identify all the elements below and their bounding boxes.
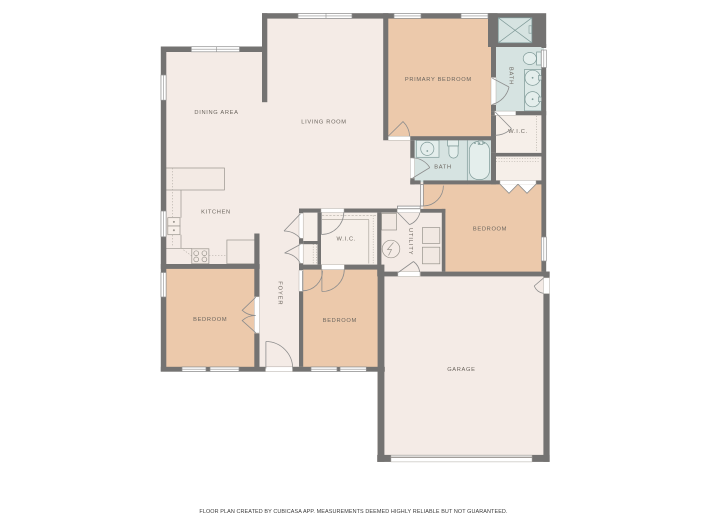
svg-text:BATH: BATH — [507, 67, 513, 85]
svg-text:FLOOR PLAN CREATED BY CUBICASA: FLOOR PLAN CREATED BY CUBICASA APP. MEAS… — [199, 509, 508, 515]
svg-text:KITCHEN: KITCHEN — [201, 210, 231, 216]
svg-text:W.I.C.: W.I.C. — [337, 237, 357, 243]
svg-text:BEDROOM: BEDROOM — [473, 226, 507, 232]
svg-text:UTILITY: UTILITY — [407, 228, 413, 255]
svg-text:BEDROOM: BEDROOM — [323, 318, 357, 324]
svg-text:BATH: BATH — [434, 164, 451, 170]
svg-text:GARAGE: GARAGE — [447, 367, 475, 373]
svg-text:DINING AREA: DINING AREA — [194, 110, 238, 116]
svg-text:W.I.C.: W.I.C. — [508, 129, 528, 135]
svg-text:BEDROOM: BEDROOM — [193, 317, 227, 323]
svg-text:FOYER: FOYER — [277, 281, 283, 305]
svg-text:PRIMARY BEDROOM: PRIMARY BEDROOM — [405, 77, 472, 83]
svg-text:LIVING ROOM: LIVING ROOM — [301, 120, 346, 126]
